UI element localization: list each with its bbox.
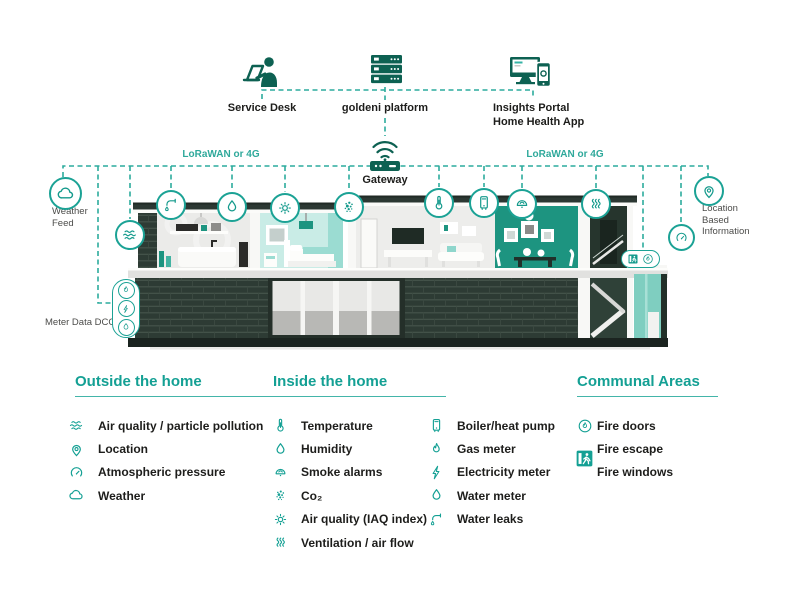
legend-item: Co₂ — [272, 484, 427, 507]
legend-item-label: Electricity meter — [457, 465, 550, 479]
water-drop-icon — [272, 441, 289, 458]
legend-item-label: Location — [98, 442, 148, 456]
meter-data-dcc-label: Meter Data DCC — [45, 317, 115, 329]
sensor-pressure-badge — [668, 224, 695, 251]
sensor-co2-badge — [334, 192, 364, 222]
sensor-iaq-badge — [270, 193, 300, 223]
sensor-air-quality-badge — [115, 220, 145, 250]
legend-item: Water meter — [428, 484, 555, 507]
thermometer-icon — [430, 194, 448, 212]
cloud-icon — [68, 487, 85, 504]
legend-item-label: Temperature — [301, 419, 373, 433]
iaq-sun-icon — [272, 511, 289, 528]
legend-item-label: Co₂ — [301, 489, 322, 503]
legend-item: Location — [68, 437, 263, 460]
air-waves-icon — [68, 417, 85, 434]
location-pin-icon — [68, 441, 85, 458]
legend-item: Smoke alarms — [272, 461, 427, 484]
house-upper-floor — [133, 196, 637, 269]
water-drop-icon — [223, 198, 241, 216]
legend-item: Humidity — [272, 437, 427, 460]
gas-meter-mini-badge — [118, 282, 135, 299]
sensor-humidity-badge — [217, 192, 247, 222]
legend-inside-list-col2: Boiler/heat pump Gas meter Electricity m… — [428, 414, 555, 531]
fire-safety-pill — [621, 250, 660, 268]
house-lower-floor — [128, 265, 668, 350]
ventilation-icon — [587, 195, 605, 213]
legend-item: Weather — [68, 484, 263, 507]
ventilation-icon — [272, 534, 289, 551]
water-leak-icon — [162, 196, 180, 214]
legend-inside-title: Inside the home — [273, 373, 387, 390]
lorawan-left-label: LoRaWAN or 4G — [173, 149, 269, 160]
legend-item: Atmospheric pressure — [68, 461, 263, 484]
iaq-sun-icon — [276, 199, 294, 217]
service-desk-icon — [244, 57, 277, 87]
fire-escape-icon — [574, 448, 595, 469]
water-drop-icon — [428, 487, 445, 504]
legend-item-label: Air quality / particle pollution — [98, 419, 263, 433]
legend-item: Boiler/heat pump — [428, 414, 555, 437]
legend-item-label: Fire windows — [597, 465, 673, 479]
gauge-icon — [68, 464, 85, 481]
legend-item: Water leaks — [428, 508, 555, 531]
insights-label-line1: Insights Portal — [493, 102, 613, 116]
legend-item: Fire doors — [577, 414, 673, 437]
legend-outside-title: Outside the home — [75, 373, 202, 390]
location-pin-icon — [700, 182, 718, 200]
cloud-icon — [56, 184, 76, 204]
legend-item: Ventilation / air flow — [272, 531, 427, 554]
legend-item-label: Air quality (IAQ index) — [301, 512, 427, 526]
co2-particles-icon — [340, 198, 358, 216]
flame-icon — [428, 441, 445, 458]
fire-escape-icon — [627, 253, 639, 265]
platform-label: goldeni platform — [325, 102, 445, 116]
service-desk-label: Service Desk — [212, 102, 312, 116]
legend-inside-list-col1: Temperature Humidity Smoke alarms Co₂ Ai… — [272, 414, 427, 554]
gateway-label: Gateway — [345, 174, 425, 188]
air-waves-icon — [121, 226, 139, 244]
electricity-meter-mini-badge — [118, 300, 135, 317]
smart-home-infographic: Service Desk goldeni platform Insights P… — [0, 0, 800, 601]
boiler-icon — [428, 417, 445, 434]
sensor-water-leaks-badge — [156, 190, 186, 220]
legend-item-label: Humidity — [301, 442, 352, 456]
legend-item-label: Atmospheric pressure — [98, 465, 225, 479]
server-stack-icon — [371, 55, 402, 83]
legend-communal-title: Communal Areas — [577, 373, 700, 390]
flame-icon — [121, 285, 131, 295]
sensor-ventilation-badge — [581, 189, 611, 219]
fire-door-flame-icon — [577, 417, 593, 434]
legend-inside-rule — [273, 396, 446, 397]
gateway-icon — [370, 142, 400, 171]
bolt-icon — [428, 464, 445, 481]
co2-particles-icon — [272, 487, 289, 504]
legend-item-label: Weather — [98, 489, 145, 503]
legend-item: Gas meter — [428, 437, 555, 460]
legend-item-label: Water meter — [457, 489, 526, 503]
sensor-weather-feed-badge — [49, 177, 82, 210]
lorawan-right-label: LoRaWAN or 4G — [517, 149, 613, 160]
gauge-icon — [674, 230, 689, 245]
legend-item-label: Fire escape — [597, 442, 663, 456]
legend-outside-rule — [75, 396, 273, 397]
legend-item-label: Boiler/heat pump — [457, 419, 555, 433]
water-drop-icon — [121, 322, 131, 332]
legend-item-label: Water leaks — [457, 512, 523, 526]
legend-item: Air quality / particle pollution — [68, 414, 263, 437]
sensor-temperature-badge — [424, 188, 454, 218]
legend-item-label: Fire doors — [597, 419, 656, 433]
location-based-info-label: Location Based Information — [702, 203, 750, 238]
smoke-alarm-icon — [272, 464, 289, 481]
legend-outside-list: Air quality / particle pollution Locatio… — [68, 414, 263, 508]
legend-item-label: Gas meter — [457, 442, 516, 456]
sensor-smoke-alarm-badge — [507, 189, 537, 219]
insights-portal-icon — [510, 57, 551, 87]
fire-door-flame-icon — [642, 253, 654, 265]
sensor-boiler-badge — [469, 188, 499, 218]
boiler-icon — [475, 194, 493, 212]
meter-data-pill — [112, 279, 140, 338]
water-leak-icon — [428, 511, 445, 528]
smoke-alarm-icon — [513, 195, 531, 213]
legend-item-label: Ventilation / air flow — [301, 536, 414, 550]
sensor-location-badge — [694, 176, 724, 206]
legend-item-label: Smoke alarms — [301, 465, 382, 479]
weather-feed-label: Weather Feed — [52, 206, 88, 229]
legend-item: Temperature — [272, 414, 427, 437]
legend-item: Electricity meter — [428, 461, 555, 484]
bolt-icon — [121, 304, 131, 314]
legend-item: Air quality (IAQ index) — [272, 508, 427, 531]
thermometer-icon — [272, 417, 289, 434]
insights-label-line2: Home Health App — [493, 116, 613, 130]
legend-communal-rule — [577, 396, 718, 397]
insights-label: Insights Portal Home Health App — [493, 102, 613, 129]
water-meter-mini-badge — [118, 319, 135, 336]
